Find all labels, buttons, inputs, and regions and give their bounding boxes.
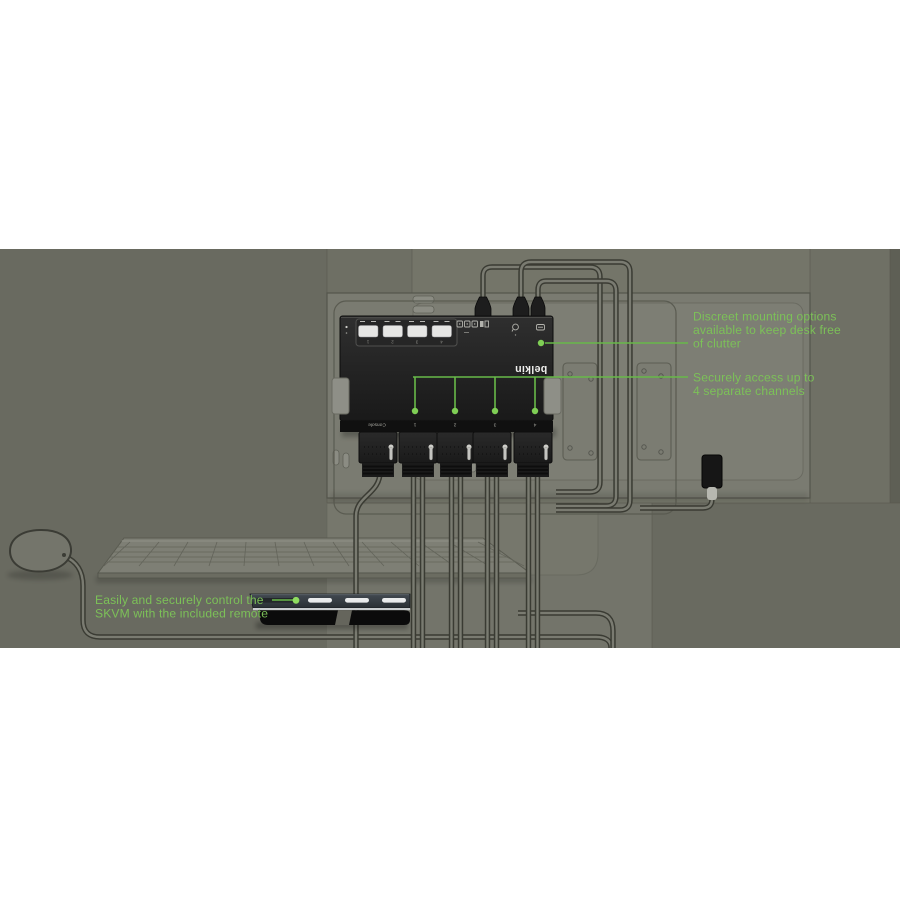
svg-text:3: 3 [493,422,496,428]
mount-slot-top-1 [413,296,434,303]
callout-channels-text: Securely access up to 4 separate channel… [693,371,818,398]
console-label: Console [368,422,386,428]
keyboard-top [98,538,530,573]
cable-head [437,432,475,477]
remote-rim [253,608,410,610]
svg-text:2: 2 [453,422,456,428]
usb-icon [480,321,484,327]
mouse-body [10,530,71,572]
product-diagram: 1 2 3 4 [0,0,900,900]
remote-base [258,610,410,625]
keyboard [96,538,532,583]
wall-panel-right [810,249,890,503]
remote-button-2 [345,598,369,603]
kvm-switch: 1 2 3 4 [332,297,561,437]
wall-edge-dark [890,249,900,503]
cable-head [399,432,437,477]
belkin-logo: belkin [515,363,547,375]
power-plug-body [702,455,722,488]
power-led-icon [345,326,347,328]
cable-head [359,432,397,477]
cable-heads [359,432,552,477]
bracket-clip-right [544,378,561,414]
cable-head [514,432,552,477]
svg-text:4: 4 [533,422,536,428]
bracket-clip-left [332,378,349,414]
channel-button-panel: 1 2 3 4 [345,319,457,346]
keyboard-front-edge [98,573,530,578]
callout-remote-text: Easily and securely control the SKVM wit… [95,593,268,620]
vent-slot-2 [343,453,349,468]
mount-slot-top-2 [413,306,434,313]
remote-button-3 [382,598,406,603]
remote-button-1 [308,598,332,603]
cable-head [473,432,511,477]
power-plug-sleeve [707,487,717,500]
product-diagram-page: 1 2 3 4 [0,0,900,900]
svg-text:1: 1 [413,422,416,428]
